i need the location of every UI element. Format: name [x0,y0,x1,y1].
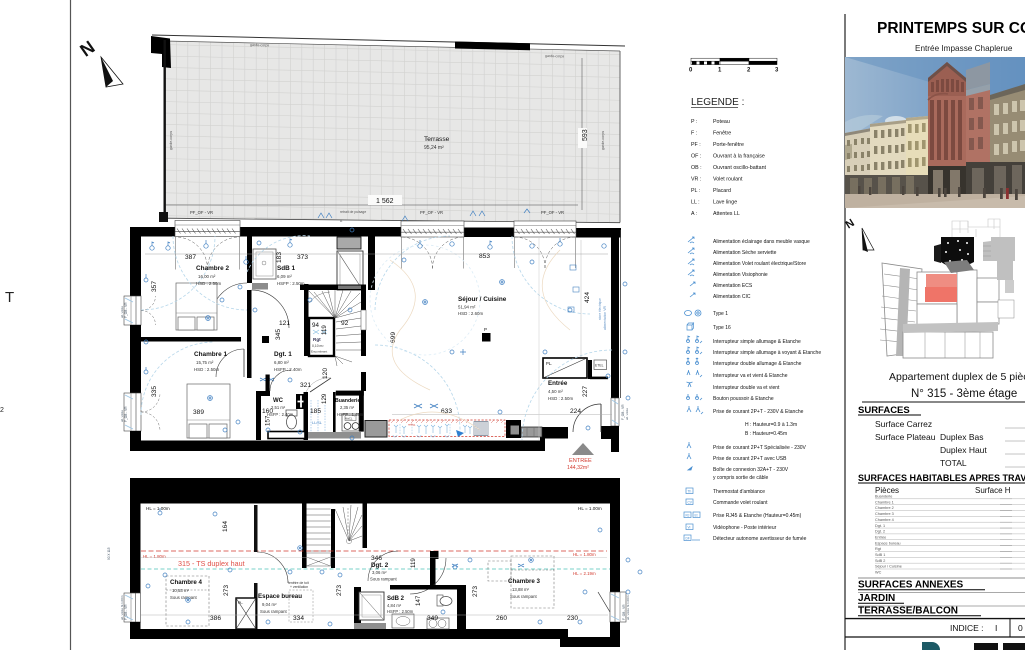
svg-text:SdB 2: SdB 2 [875,559,885,563]
svg-text:F_OB - VR: F_OB - VR [124,604,128,620]
svg-text:Surface Plateau: Surface Plateau [875,432,936,442]
svg-text:HL = 1.80m: HL = 1.80m [143,554,166,559]
svg-text:garde-corps: garde-corps [250,43,269,47]
svg-text:DF: DF [686,537,690,541]
svg-text:HSFP : 2.50m: HSFP : 2.50m [277,281,305,286]
svg-text:346: 346 [371,555,382,562]
svg-text:Bouton poussoir & Etanche: Bouton poussoir & Etanche [713,396,774,402]
svg-text:WC: WC [273,398,284,404]
svg-text:Buanderie: Buanderie [875,495,892,499]
svg-text:PL.: PL. [546,361,552,366]
svg-text:6,80 m²: 6,80 m² [274,360,289,365]
svg-text:Prise de courant 2P+T - 230V &: Prise de courant 2P+T - 230V & Etanche [713,409,804,415]
svg-text:Entrée Impasse Chaplerue: Entrée Impasse Chaplerue [915,44,1013,53]
svg-text:345: 345 [275,329,282,340]
svg-text:Entrée: Entrée [548,380,568,387]
svg-text:2,51 m²: 2,51 m² [271,405,286,410]
svg-text:Et: Et [695,514,698,518]
svg-text:Chambre 3: Chambre 3 [508,578,541,585]
svg-text:HSD : 2.50m: HSD : 2.50m [548,396,573,401]
svg-text:all. vitrée: all. vitrée [120,306,124,318]
svg-text:Dgt. 1: Dgt. 1 [875,524,885,528]
svg-text:94: 94 [312,322,319,329]
svg-text:Boîte de connexion 32A+T - 230: Boîte de connexion 32A+T - 230V [713,467,789,473]
svg-text:9,04 m²: 9,04 m² [262,602,277,607]
svg-text:1 562: 1 562 [376,198,394,205]
svg-text:TERRASSE/BALCON: TERRASSE/BALCON [858,606,958,617]
svg-text:Chambre 2: Chambre 2 [196,265,229,272]
svg-text:389: 389 [193,409,204,416]
svg-text:all. vitrée: all. vitrée [120,410,124,422]
svg-text:MàCL: MàCL [345,417,353,421]
svg-text:160: 160 [262,408,273,415]
svg-text:335: 335 [151,386,158,397]
svg-text:HL = 1.80m: HL = 1.80m [573,552,596,557]
svg-text:349: 349 [427,615,438,622]
svg-text:Thermostat d'ambiance: Thermostat d'ambiance [713,489,765,495]
svg-text:INDICE :: INDICE : [950,623,984,633]
svg-text:273: 273 [336,585,343,596]
svg-text:Surface Carrez: Surface Carrez [875,419,932,429]
svg-text:373: 373 [297,254,308,261]
svg-text:144,32m²: 144,32m² [567,465,589,471]
svg-text:Interrupteur double allumage &: Interrupteur double allumage & Etanche [713,361,802,367]
svg-text:Dgt. 2: Dgt. 2 [875,530,885,534]
svg-text:Alimentation Volet roulant éle: Alimentation Volet roulant électrique/St… [713,261,806,267]
svg-text:HSFP : 2.50m: HSFP : 2.50m [387,609,414,614]
svg-text:Espace bureau: Espace bureau [258,593,302,600]
svg-text:Ouvrant à la française: Ouvrant à la française [713,154,765,160]
svg-text:H : Hauteur=0.9 à 1.3m: H : Hauteur=0.9 à 1.3m [745,422,797,428]
svg-text:Alimentation Visiophonie: Alimentation Visiophonie [713,272,768,278]
svg-text:Sous rampant: Sous rampant [260,609,288,614]
svg-text:Interrupteur simple allumage à: Interrupteur simple allumage à voyant & … [713,350,821,356]
svg-text:OF :: OF : [691,154,701,160]
svg-text:Chambre 1: Chambre 1 [875,500,894,504]
svg-text:10,53 m²: 10,53 m² [172,588,190,593]
svg-text:121: 121 [279,320,290,327]
svg-text:260: 260 [496,615,507,622]
svg-text:retrait de pulsage: retrait de pulsage [340,210,366,214]
svg-text:321: 321 [300,382,311,389]
svg-text:3,06 m²: 3,06 m² [372,570,387,575]
svg-text:ENTREE: ENTREE [569,458,592,464]
svg-text:Porte-fenêtre: Porte-fenêtre [713,142,744,148]
svg-text:Type 1: Type 1 [713,311,728,317]
svg-text:LL :: LL : [691,200,700,206]
svg-text:Type 16: Type 16 [713,325,731,331]
svg-text:2,35 m²: 2,35 m² [340,405,355,410]
svg-text:Sous rampant: Sous rampant [370,577,398,582]
svg-text:Alimentation éclairage dans me: Alimentation éclairage dans meuble vasqu… [713,239,810,245]
svg-text:0,10 m²: 0,10 m² [312,344,324,348]
svg-text:Prise de courant 2P+T avec USB: Prise de courant 2P+T avec USB [713,456,787,462]
svg-text:357: 357 [151,281,158,292]
svg-text:HSD : 2.50m: HSD : 2.50m [194,367,219,372]
svg-text:Sous rampant: Sous rampant [170,595,198,600]
svg-text:SURFACES HABITABLES APRES TRAV: SURFACES HABITABLES APRES TRAVAUX [858,473,1025,483]
svg-text:Interrupteur double va et vien: Interrupteur double va et vient [713,385,780,391]
svg-text:store électrique: store électrique [598,298,602,320]
svg-text:15,75 m²: 15,75 m² [196,360,214,365]
svg-text:Détecteur autonome avertisseur: Détecteur autonome avertisseur de fumée [713,536,807,542]
svg-text:HL = 2.19m: HL = 2.19m [573,571,596,576]
svg-text:F :: F : [691,131,697,137]
svg-text:VR :: VR : [691,177,701,183]
svg-text:6,09 m²: 6,09 m² [277,274,292,279]
svg-text:Attentes LL: Attentes LL [713,211,740,217]
svg-text:119: 119 [410,558,417,568]
svg-text:Chambre 1: Chambre 1 [194,351,227,358]
svg-text:0: 0 [1018,623,1023,633]
svg-text:Interrupteur simple allumage &: Interrupteur simple allumage & Etanche [713,339,801,345]
svg-text:alimentation VR: alimentation VR [603,306,607,330]
svg-text:TOTAL: TOTAL [940,458,967,468]
svg-text:A :: A : [691,211,697,217]
svg-text:2: 2 [0,407,4,414]
svg-text:Volet roulant: Volet roulant [713,177,743,183]
svg-text:157: 157 [265,415,272,426]
svg-text:SURFACES: SURFACES [858,405,910,416]
svg-text:PRINTEMPS SUR COUR: PRINTEMPS SUR COUR [877,20,1025,37]
svg-text:Dgt. 1: Dgt. 1 [274,351,292,358]
svg-text:Vi: Vi [688,526,691,530]
svg-text:WC: WC [875,571,882,575]
svg-text:185: 185 [310,408,321,415]
svg-text:164: 164 [222,521,229,532]
svg-text:B : Hauteur=0.45m: B : Hauteur=0.45m [745,431,787,437]
svg-text:Prise RJ45 & Etanche (Hauteur=: Prise RJ45 & Etanche (Hauteur=0.45m) [713,513,802,519]
svg-text:386: 386 [210,615,221,622]
svg-text:Vidéophone - Poste intérieur: Vidéophone - Poste intérieur [713,525,777,531]
svg-text:PL.: PL. [238,601,243,605]
svg-text:SdB 1: SdB 1 [875,553,885,557]
svg-text:PF_OF - VR: PF_OF - VR [541,210,564,215]
svg-text:Alimentation Sèche serviette: Alimentation Sèche serviette [713,250,777,256]
svg-text:PF_OF - VR: PF_OF - VR [420,210,443,215]
svg-text:LEGENDE :: LEGENDE : [691,97,744,108]
svg-text:N° 315 - 3ème étage: N° 315 - 3ème étage [911,388,1017,400]
svg-text:90 X 115: 90 X 115 [107,547,111,560]
svg-text:334: 334 [293,615,304,622]
svg-text:garde-corps: garde-corps [169,131,173,150]
svg-text:garde-corps: garde-corps [545,54,564,58]
svg-text:Commande volet roulant: Commande volet roulant [713,500,768,506]
svg-text:230: 230 [567,615,578,622]
svg-text:y compris sortie de câble: y compris sortie de câble [713,475,769,481]
svg-text:315 - TS duplex haut: 315 - TS duplex haut [178,559,245,568]
svg-text:garde-corps: garde-corps [601,131,605,150]
svg-text:all. vitrée ht.1.00m: all. vitrée ht.1.00m [120,595,124,620]
svg-text:SURFACES ANNEXES: SURFACES ANNEXES [858,580,964,591]
svg-text:120: 120 [322,368,329,379]
svg-text:Terrasse: Terrasse [424,136,450,143]
svg-text:P :: P : [691,119,697,125]
svg-text:Fenêtre: Fenêtre [713,131,731,137]
svg-text:4,50 m²: 4,50 m² [548,389,563,394]
svg-text:Alimentation CIC: Alimentation CIC [713,294,751,300]
svg-text:Appartement duplex de 5 pièce(: Appartement duplex de 5 pièce(s) [889,371,1025,383]
svg-text:Poteau: Poteau [713,119,730,125]
svg-text:Chambre 2: Chambre 2 [875,506,894,510]
svg-text:+ ventilation: + ventilation [290,585,308,589]
svg-text:Encombrant: Encombrant [311,350,327,354]
svg-text:Entrée: Entrée [875,535,886,539]
svg-text:Surface H: Surface H [975,486,1011,495]
svg-text:Buanderie: Buanderie [335,398,360,404]
svg-text:Rgt: Rgt [875,547,882,551]
svg-text:SdB 1: SdB 1 [277,265,296,272]
svg-text:F_OB - VR: F_OB - VR [124,302,128,318]
svg-text:RJ: RJ [686,514,690,518]
svg-text:Lave linge: Lave linge [713,200,737,206]
svg-text:Prise de courant 2P+T Spéciali: Prise de courant 2P+T Spécialisée - 230V [713,445,807,451]
svg-text:92: 92 [341,320,349,327]
svg-text:HSFP : 2.40m: HSFP : 2.40m [274,367,302,372]
svg-text:Duplex Bas: Duplex Bas [940,432,983,442]
svg-text:PF_OF - VR: PF_OF - VR [190,210,213,215]
svg-text:Alimentation ECS: Alimentation ECS [713,283,753,289]
svg-text:147: 147 [415,595,422,606]
svg-text:273: 273 [223,585,230,596]
svg-text:refrig.: refrig. [408,423,416,427]
svg-text:Rgt: Rgt [313,337,321,342]
svg-text:4,84 m²: 4,84 m² [387,603,402,608]
svg-text:Chambre 4: Chambre 4 [875,518,894,522]
svg-text:Th: Th [688,490,692,494]
svg-text:Séjour / Cuisine: Séjour / Cuisine [458,296,507,303]
svg-text:P: P [484,327,487,332]
svg-text:95,24 m²: 95,24 m² [424,145,444,151]
svg-text:387: 387 [185,254,196,261]
svg-text:SdB 2: SdB 2 [387,596,405,602]
svg-text:F_OB - VR: F_OB - VR [124,406,128,422]
svg-text:Duplex Haut: Duplex Haut [940,445,987,455]
svg-text:Sous rampant: Sous rampant [510,594,538,599]
svg-text:Interrupteur va et vient & Eta: Interrupteur va et vient & Etanche [713,373,788,379]
svg-text:HSD : 2.60m: HSD : 2.60m [458,311,483,316]
svg-text:853: 853 [479,253,490,260]
svg-text:13,88 m²: 13,88 m² [512,587,530,592]
svg-text:JARDIN: JARDIN [858,593,895,604]
svg-text:I: I [995,623,997,633]
svg-text:PL :: PL : [691,188,700,194]
svg-text:183: 183 [276,252,283,263]
svg-text:51,94 m²: 51,94 m² [458,305,476,310]
svg-text:HSD : 2.50m: HSD : 2.50m [196,281,221,286]
svg-text:593: 593 [582,129,589,141]
svg-text:Séjour / Cuisine: Séjour / Cuisine [875,565,902,569]
svg-text:Dgt. 2: Dgt. 2 [371,562,389,569]
svg-text:PF :: PF : [691,142,701,148]
svg-text:224: 224 [570,408,581,415]
svg-text:Chambre 4: Chambre 4 [170,579,203,586]
svg-text:273: 273 [472,586,479,597]
svg-text:129: 129 [321,393,328,404]
svg-text:227: 227 [582,386,589,397]
svg-text:HL = 1.00m: HL = 1.00m [578,506,602,511]
svg-text:Ouvrant oscillo-battant: Ouvrant oscillo-battant [713,165,767,171]
svg-text:Chambre 3: Chambre 3 [875,512,894,516]
svg-text:424: 424 [584,292,591,303]
svg-text:ETEL: ETEL [595,364,604,368]
svg-text:119: 119 [321,325,328,335]
svg-text:Placard: Placard [713,188,731,194]
svg-text:HL = 1.00m: HL = 1.00m [146,506,170,511]
svg-text:LL/SL: LL/SL [312,421,322,425]
svg-text:16,00 m²: 16,00 m² [198,274,216,279]
svg-text:HSFP : 1,45m: HSFP : 1,45m [337,412,364,417]
svg-text:all. vitrée ht.1.00m: all. vitrée ht.1.00m [626,595,630,620]
svg-text:all. vitrée: all. vitrée [625,408,629,420]
svg-text:Espace bureau: Espace bureau [875,541,901,545]
svg-text:OB :: OB : [691,165,702,171]
svg-text:T: T [5,289,14,306]
